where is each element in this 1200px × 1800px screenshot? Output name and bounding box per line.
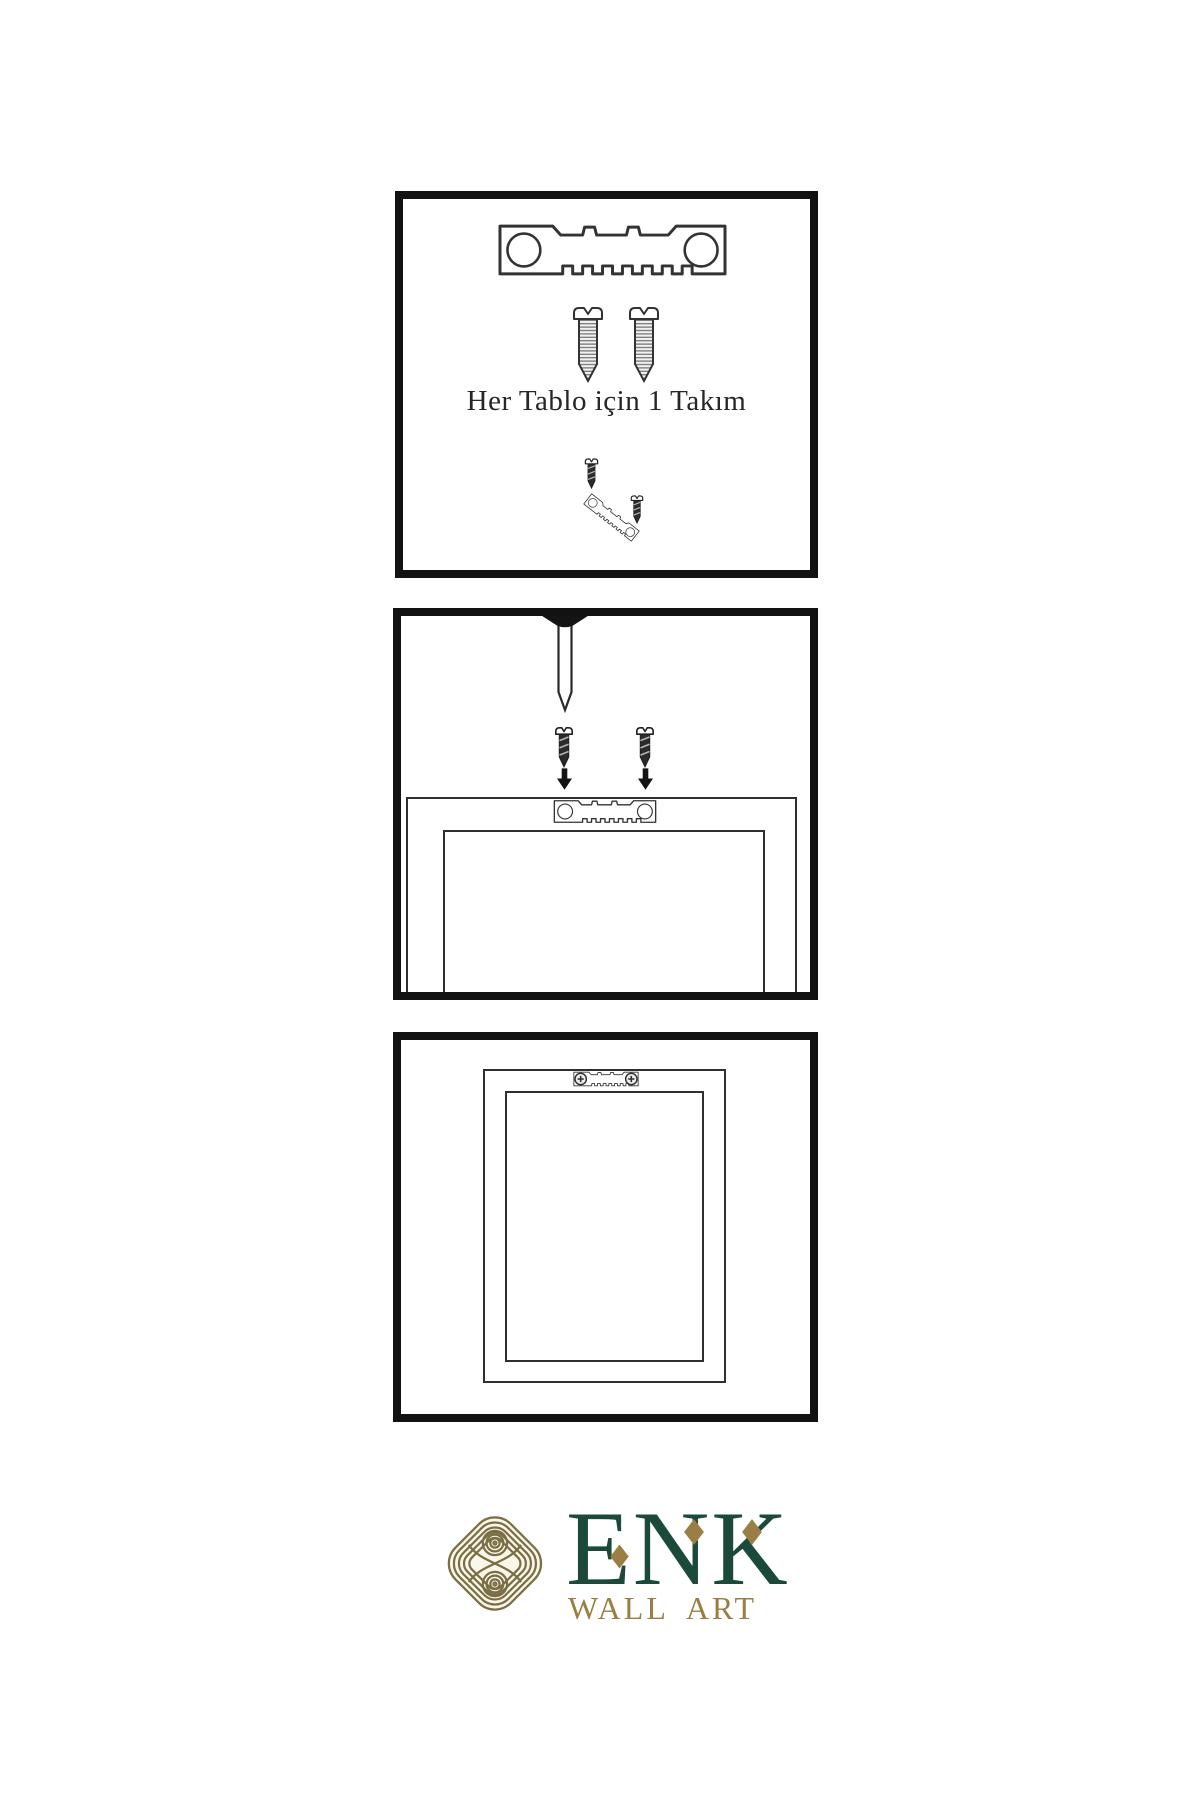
panel-install-step-content xyxy=(401,616,810,992)
frame-opening-icon xyxy=(505,1091,704,1362)
sawtooth-hanger-icon xyxy=(497,223,728,277)
sawtooth-hanger-icon xyxy=(553,799,657,824)
screw-icon xyxy=(571,305,605,383)
nail-icon xyxy=(542,616,588,716)
phillips-screw-head-icon xyxy=(575,1073,586,1084)
screw-icon xyxy=(627,305,661,383)
instruction-sheet: Her Tablo için 1 Takım xyxy=(0,0,1200,1800)
panel-install-step xyxy=(393,608,818,1000)
screw-icon xyxy=(635,725,655,768)
frame-opening-icon xyxy=(443,830,765,992)
brand-name: ENK xyxy=(566,1496,790,1602)
panel-hardware-kit-content: Her Tablo için 1 Takım xyxy=(403,199,810,570)
knot-logo-icon xyxy=(438,1502,550,1625)
mounted-sawtooth-hanger-icon xyxy=(573,1071,639,1087)
panel-mounted-frame-content xyxy=(401,1040,810,1414)
arrow-down-icon xyxy=(557,768,572,790)
arrow-down-icon xyxy=(638,768,653,790)
panel-hardware-kit: Her Tablo için 1 Takım xyxy=(395,191,818,578)
panel-mounted-frame xyxy=(393,1032,818,1422)
hanging-kit-icon xyxy=(573,449,657,549)
brand-subtitle: WALL ART xyxy=(568,1592,757,1624)
screw-icon xyxy=(554,725,574,768)
kit-caption: Her Tablo için 1 Takım xyxy=(403,385,810,418)
phillips-screw-head-icon xyxy=(626,1073,637,1084)
